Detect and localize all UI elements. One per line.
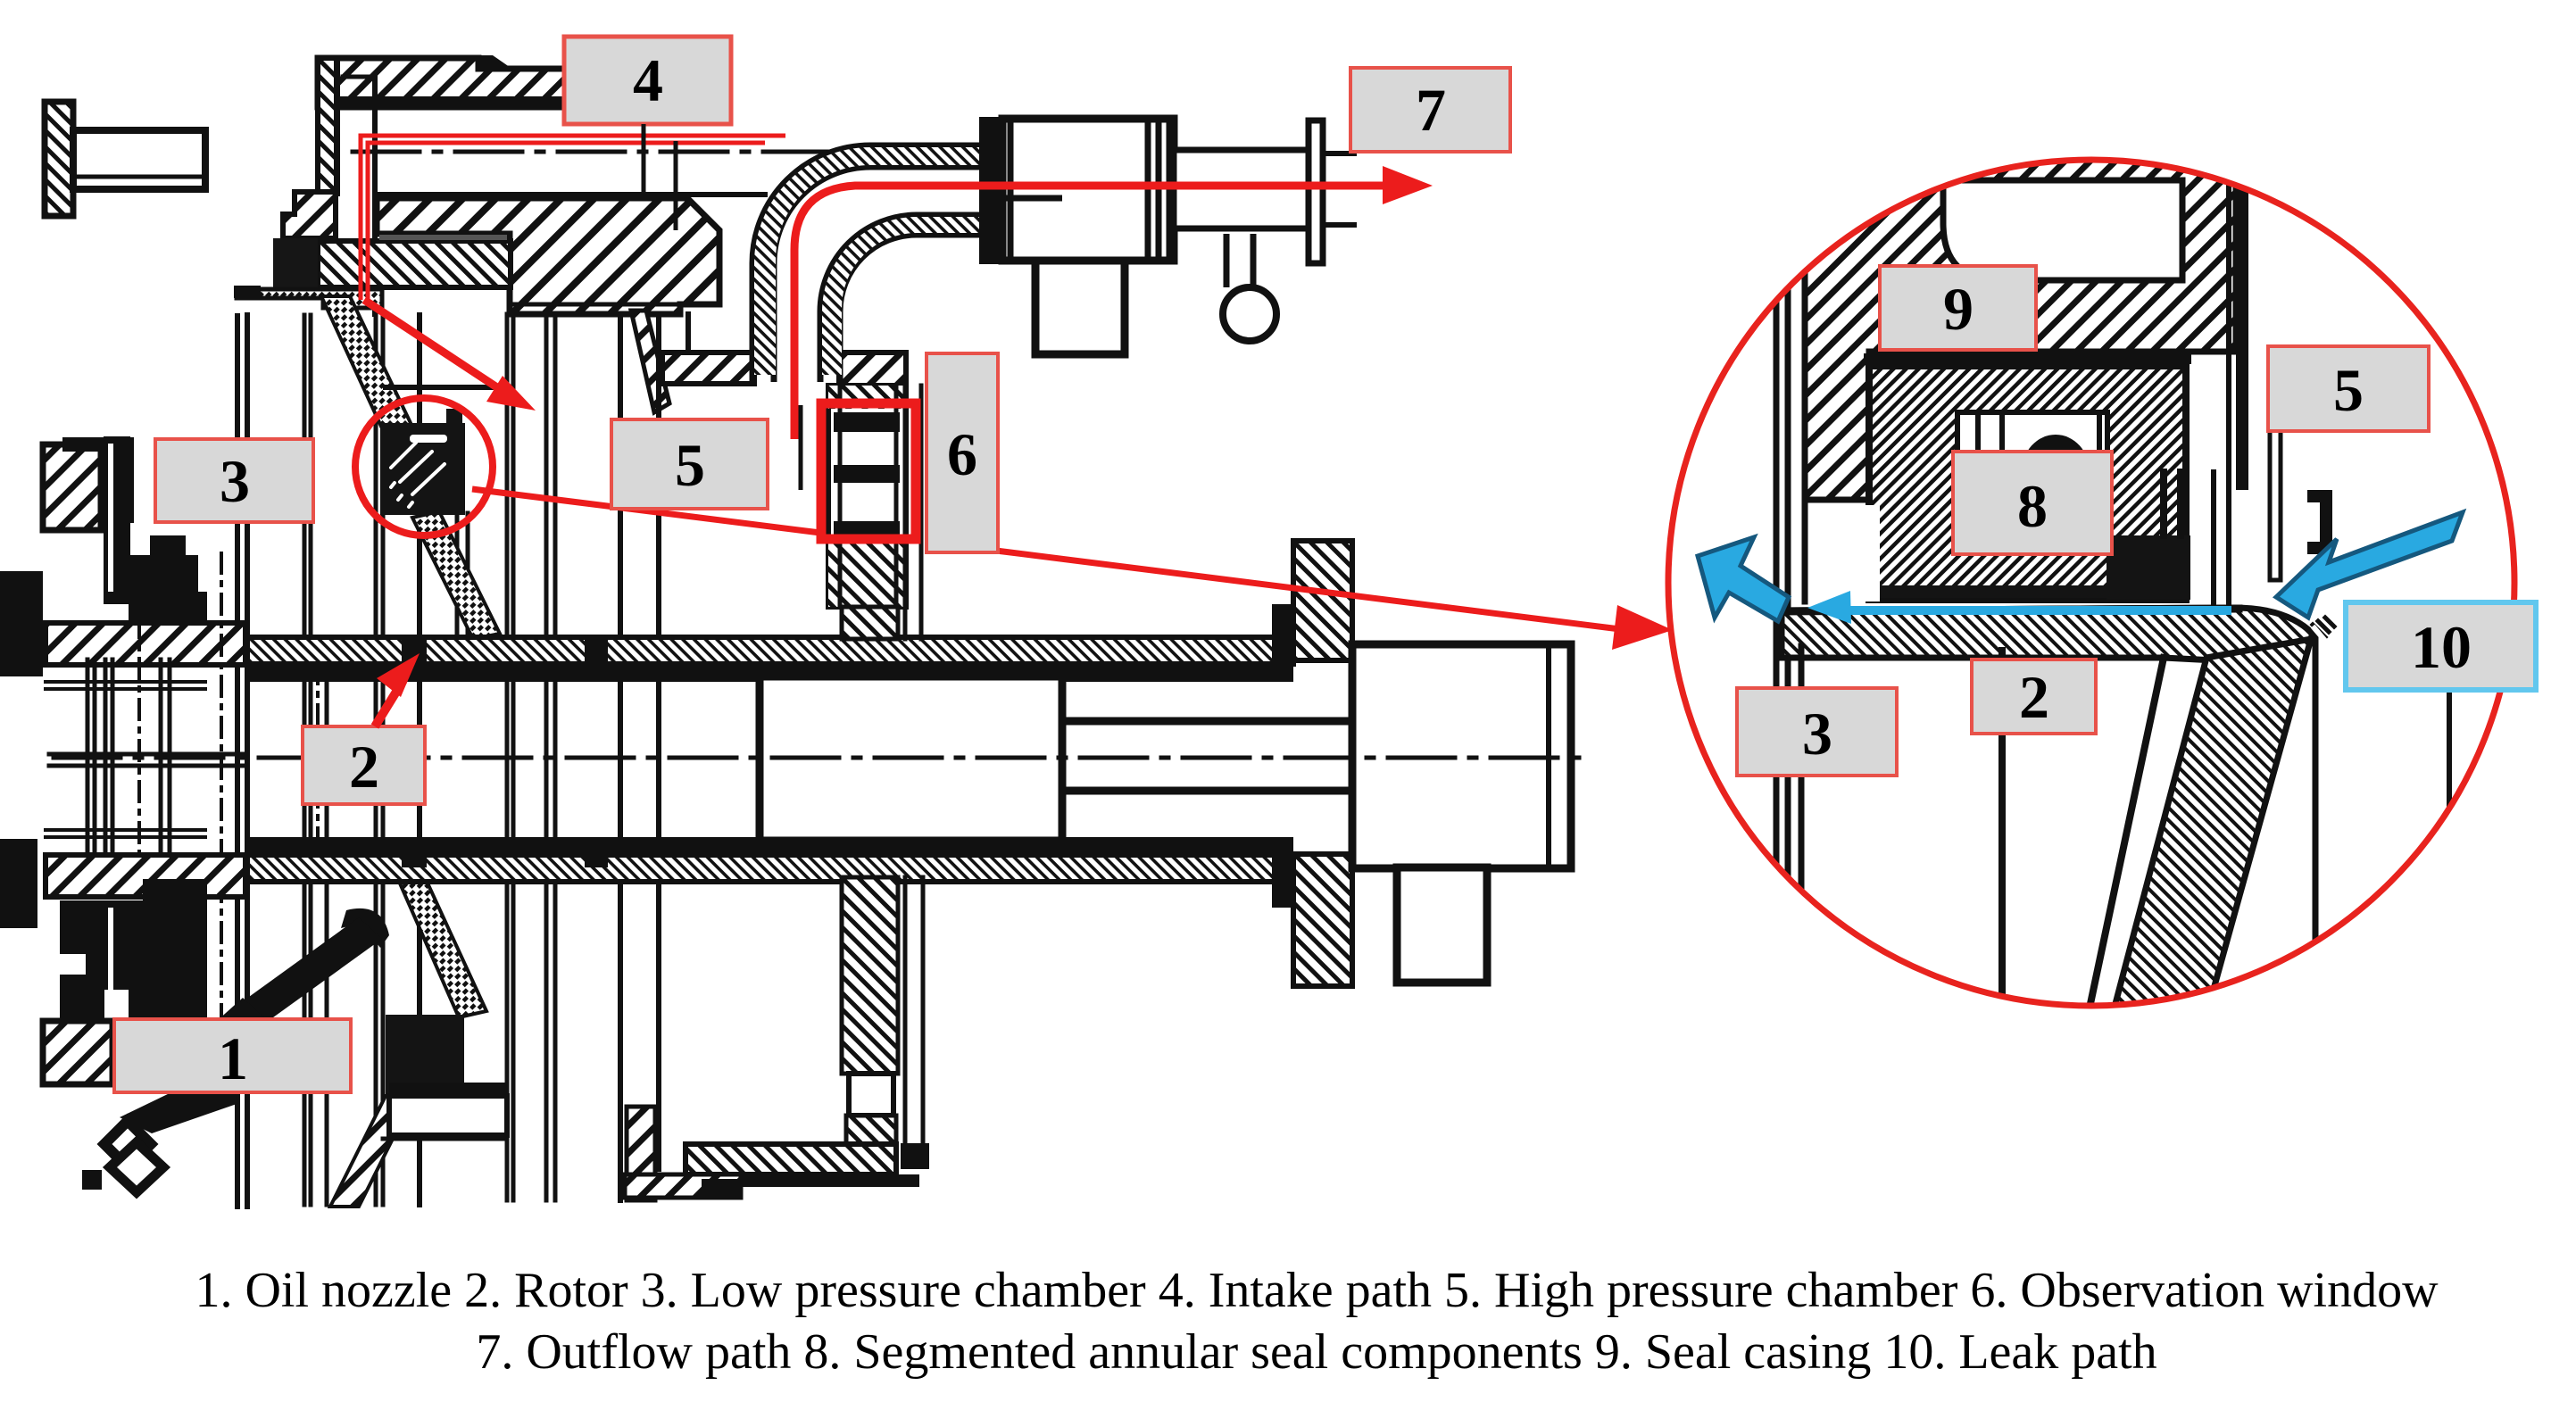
svg-text:8: 8: [2017, 472, 2048, 540]
svg-text:6: 6: [947, 420, 977, 488]
svg-text:1: 1: [218, 1025, 248, 1092]
svg-text:2: 2: [349, 733, 379, 801]
svg-text:4: 4: [633, 46, 663, 114]
svg-text:3: 3: [220, 447, 250, 515]
svg-text:7. Outflow path 8. Segmented a: 7. Outflow path 8. Segmented annular sea…: [476, 1324, 2156, 1380]
svg-text:5: 5: [2333, 356, 2364, 424]
svg-text:5: 5: [675, 431, 705, 499]
svg-text:10: 10: [2411, 613, 2472, 681]
svg-text:3: 3: [1802, 700, 1832, 767]
svg-text:2: 2: [2019, 663, 2049, 731]
svg-text:1. Oil nozzle 2. Rotor 3. Low: 1. Oil nozzle 2. Rotor 3. Low pressure c…: [195, 1263, 2439, 1318]
svg-text:9: 9: [1943, 275, 1974, 343]
svg-text:7: 7: [1416, 76, 1446, 144]
